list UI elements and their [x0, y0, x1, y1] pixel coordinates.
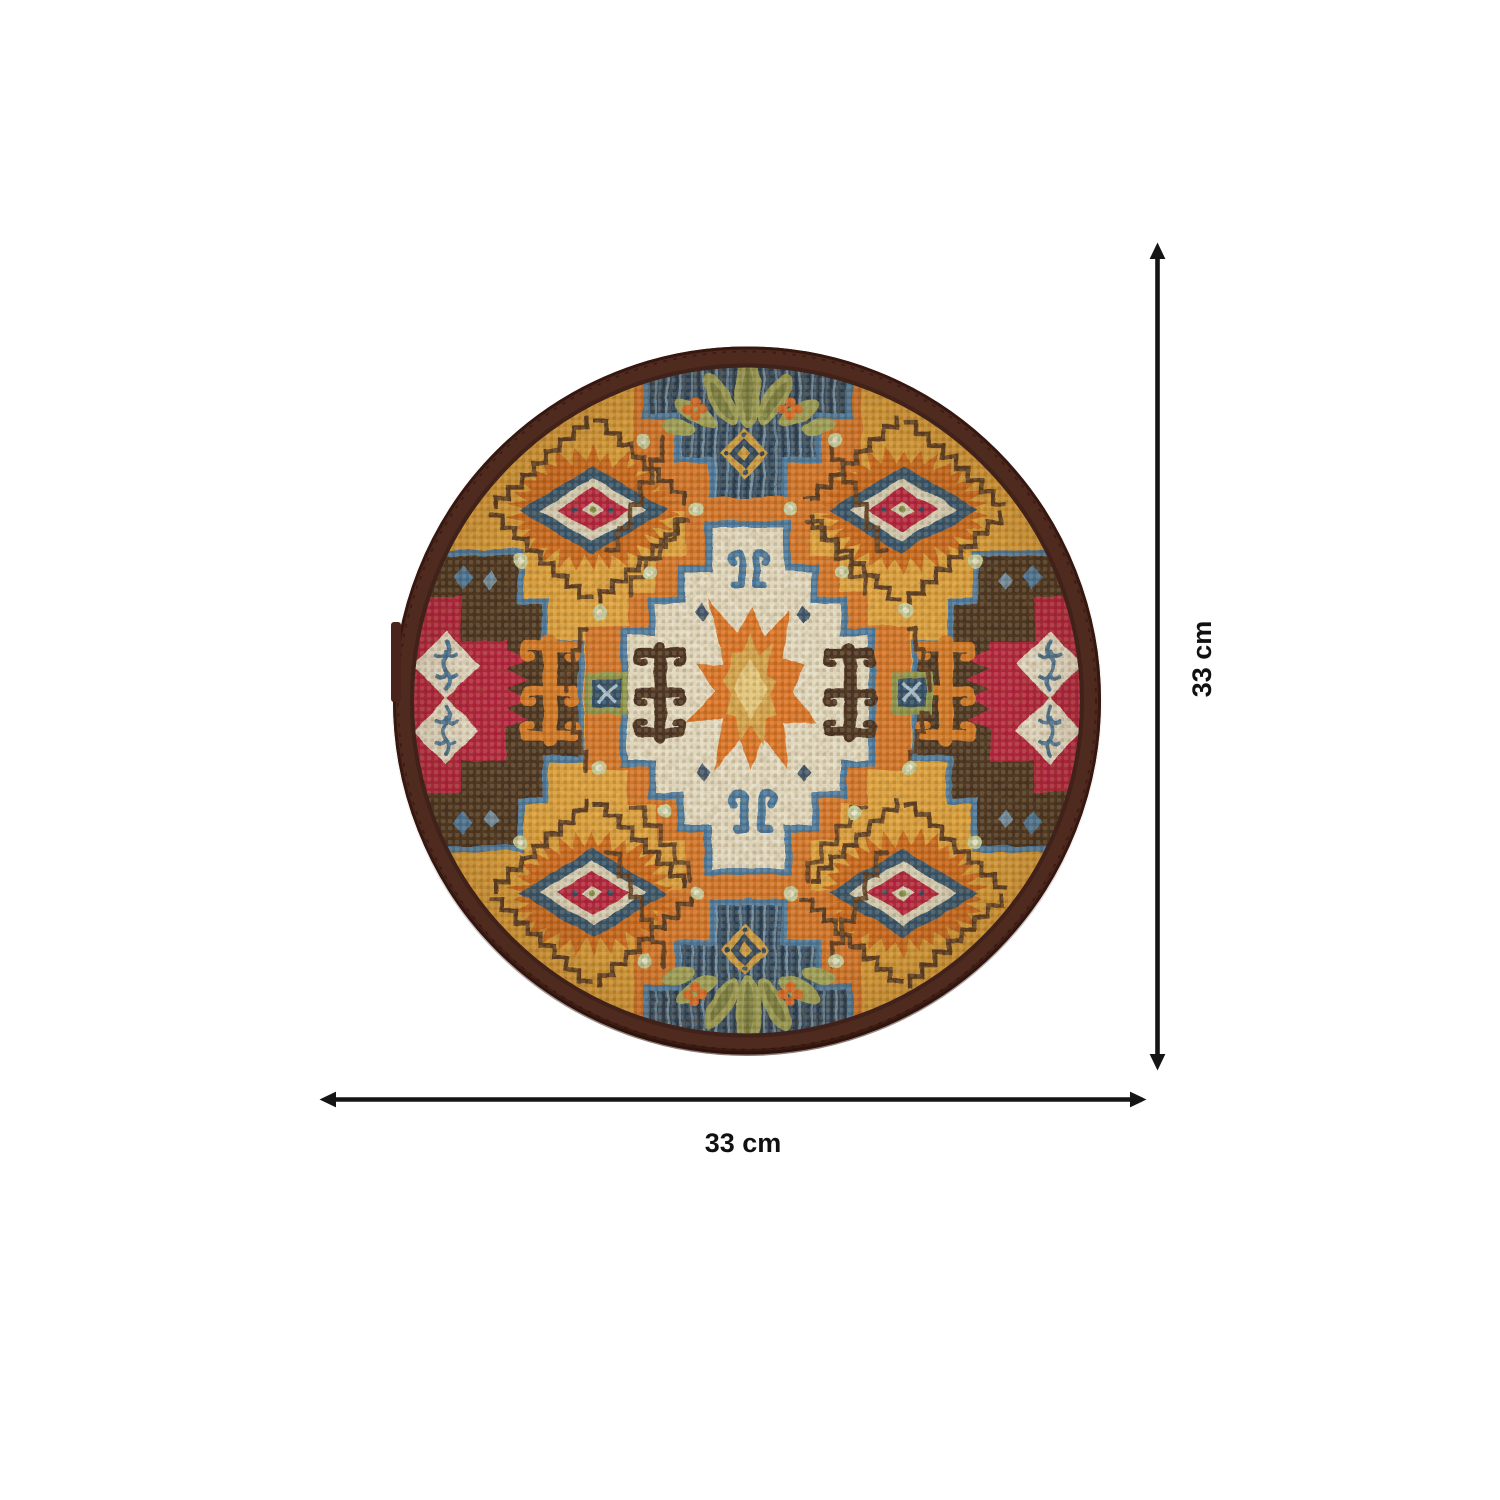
svg-text:33 cm: 33 cm — [1187, 621, 1217, 698]
svg-text:33 cm: 33 cm — [705, 1128, 782, 1158]
